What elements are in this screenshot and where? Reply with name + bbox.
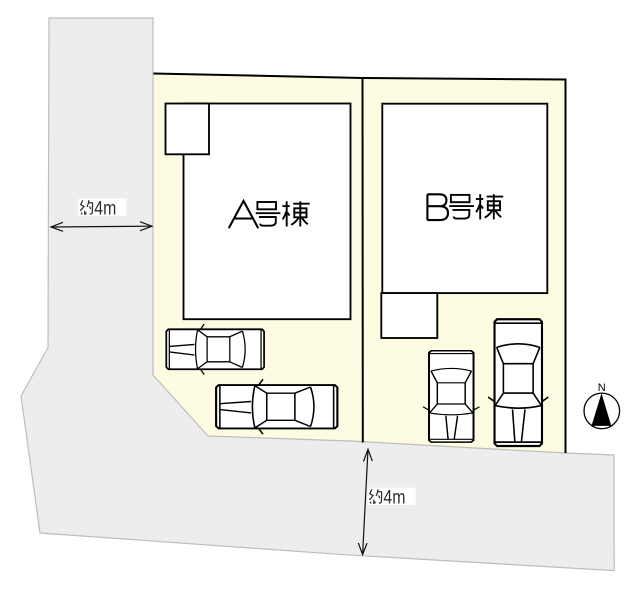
svg-text:N: N [598,382,606,394]
